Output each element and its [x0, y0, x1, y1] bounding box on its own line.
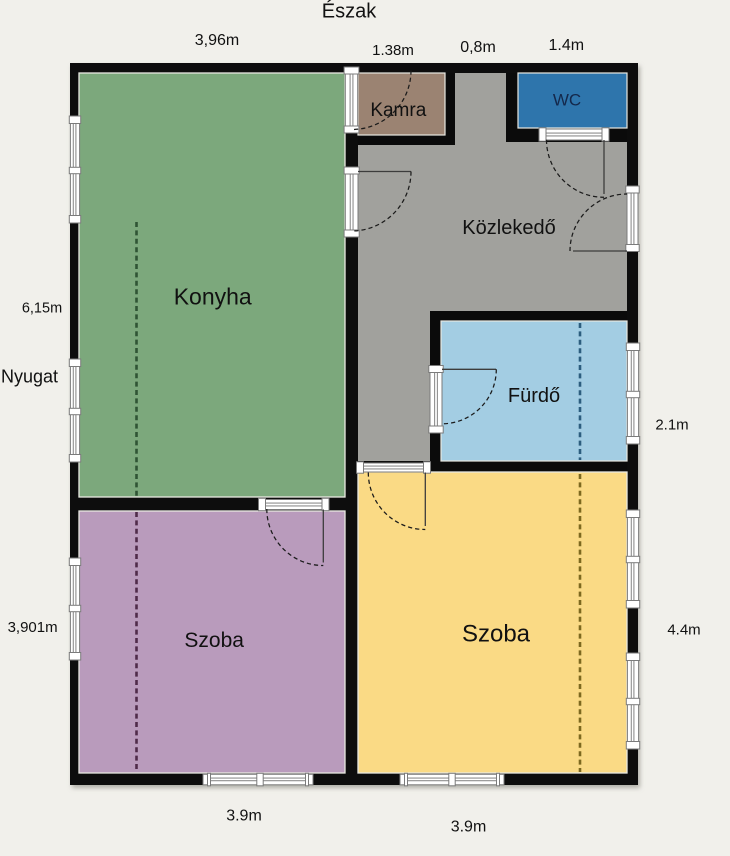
- svg-text:Nyugat: Nyugat: [1, 367, 58, 387]
- svg-text:Kamra: Kamra: [370, 100, 426, 121]
- svg-text:3.9m: 3.9m: [226, 808, 262, 825]
- svg-text:6,15m: 6,15m: [22, 301, 62, 317]
- svg-text:Konyha: Konyha: [174, 284, 252, 310]
- svg-text:4.4m: 4.4m: [667, 622, 700, 639]
- svg-text:3,96m: 3,96m: [195, 32, 239, 49]
- svg-text:Fürdő: Fürdő: [508, 385, 560, 407]
- svg-text:Szoba: Szoba: [462, 621, 531, 648]
- svg-text:WC: WC: [553, 91, 581, 110]
- svg-text:Közlekedő: Közlekedő: [462, 217, 555, 239]
- svg-text:3,901m: 3,901m: [8, 619, 58, 636]
- svg-text:1.4m: 1.4m: [549, 37, 585, 54]
- svg-text:2.1m: 2.1m: [655, 417, 688, 434]
- svg-text:3.9m: 3.9m: [451, 819, 487, 836]
- svg-text:0,8m: 0,8m: [460, 39, 496, 56]
- svg-text:Szoba: Szoba: [184, 629, 244, 652]
- svg-text:Észak: Észak: [322, 0, 377, 23]
- svg-text:1.38m: 1.38m: [372, 42, 414, 59]
